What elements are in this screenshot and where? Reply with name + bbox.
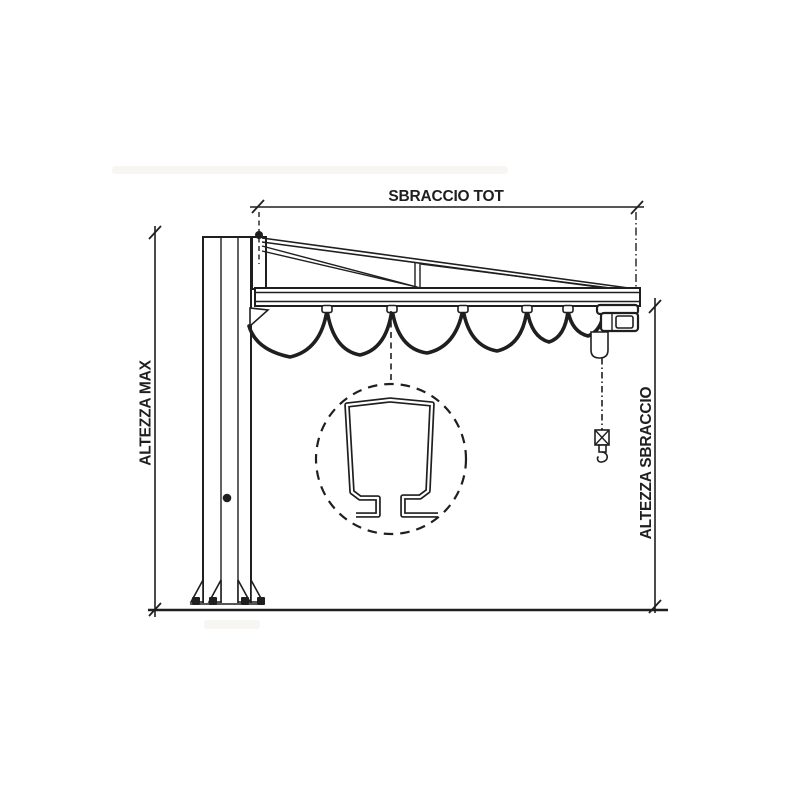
dimension-altezza-max: ALTEZZA MAX [138, 226, 162, 617]
anchor-bolt [192, 597, 200, 605]
festoon-trolley [458, 306, 468, 313]
anchor-bolt [257, 597, 265, 605]
anchor-bolt [241, 597, 249, 605]
chain-bag [591, 332, 608, 358]
dimension-sbraccio-tot: SBRACCIO TOT [250, 188, 644, 287]
hook-swivel [599, 445, 606, 452]
rail-profile-section-inner [347, 400, 438, 515]
dimension-altezza-sbraccio: ALTEZZA SBRACCIO [638, 298, 661, 613]
festoon-cable-line [249, 309, 603, 357]
scan-artifact-base [204, 620, 260, 629]
festoon-trolley [322, 306, 332, 313]
column-bolt-hole [223, 494, 232, 503]
dimension-label-sbraccio-tot: SBRACCIO TOT [388, 188, 504, 205]
festoon-trolley [387, 306, 397, 313]
truss-tie-rod [421, 264, 634, 291]
column-base [190, 580, 265, 605]
hook [598, 452, 608, 462]
anchor-bolt [209, 597, 217, 605]
pivot-pin [255, 231, 263, 239]
column [202, 237, 252, 603]
festoon-trolley [563, 306, 573, 313]
column-bracket [250, 308, 268, 326]
slewing-pivot [252, 212, 266, 289]
dimension-label-altezza-max: ALTEZZA MAX [138, 359, 155, 465]
jib-beam [255, 288, 640, 306]
jib-arm [250, 238, 640, 326]
festoon-trolley [522, 306, 532, 313]
drawing-canvas: SBRACCIO TOT ALTEZZA MAX ALTEZZA SBRACCI… [0, 0, 800, 800]
detail-circle [316, 384, 466, 534]
jib-crane-technical-drawing: SBRACCIO TOT ALTEZZA MAX ALTEZZA SBRACCI… [0, 0, 800, 800]
dimension-label-altezza-sbraccio: ALTEZZA SBRACCIO [638, 387, 655, 540]
festoon-cable [249, 306, 603, 358]
scan-artifact-top [112, 166, 508, 174]
